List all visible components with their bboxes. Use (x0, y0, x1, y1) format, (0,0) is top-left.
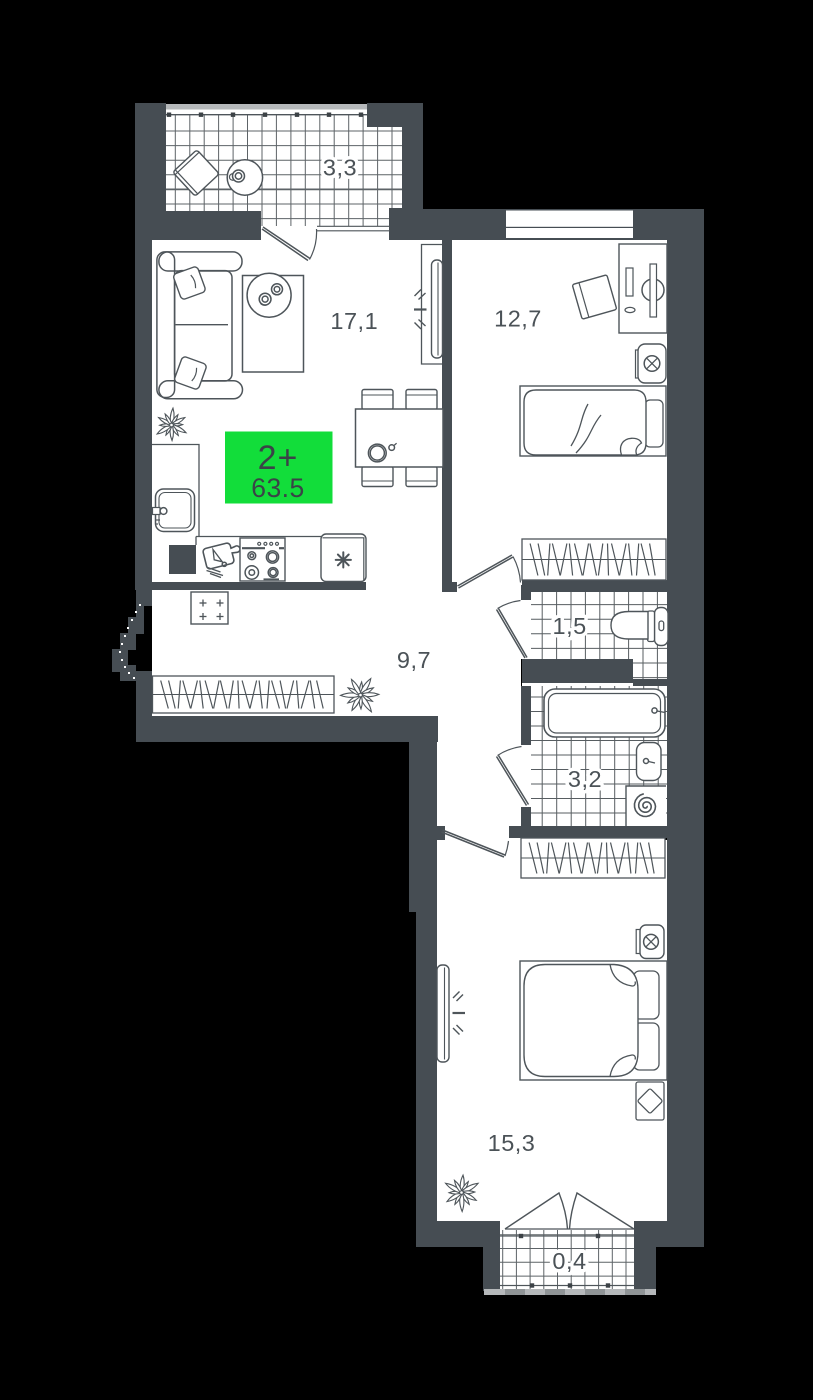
svg-text:63.5: 63.5 (251, 473, 305, 503)
svg-text:9,7: 9,7 (397, 647, 431, 673)
svg-text:15,3: 15,3 (488, 1130, 536, 1156)
svg-text:1,5: 1,5 (553, 613, 587, 639)
svg-text:12,7: 12,7 (494, 306, 542, 332)
svg-text:2+: 2+ (258, 439, 299, 477)
svg-text:17,1: 17,1 (330, 308, 378, 334)
svg-text:3,3: 3,3 (323, 155, 357, 181)
svg-text:0,4: 0,4 (552, 1248, 586, 1274)
svg-text:3,2: 3,2 (568, 766, 602, 792)
